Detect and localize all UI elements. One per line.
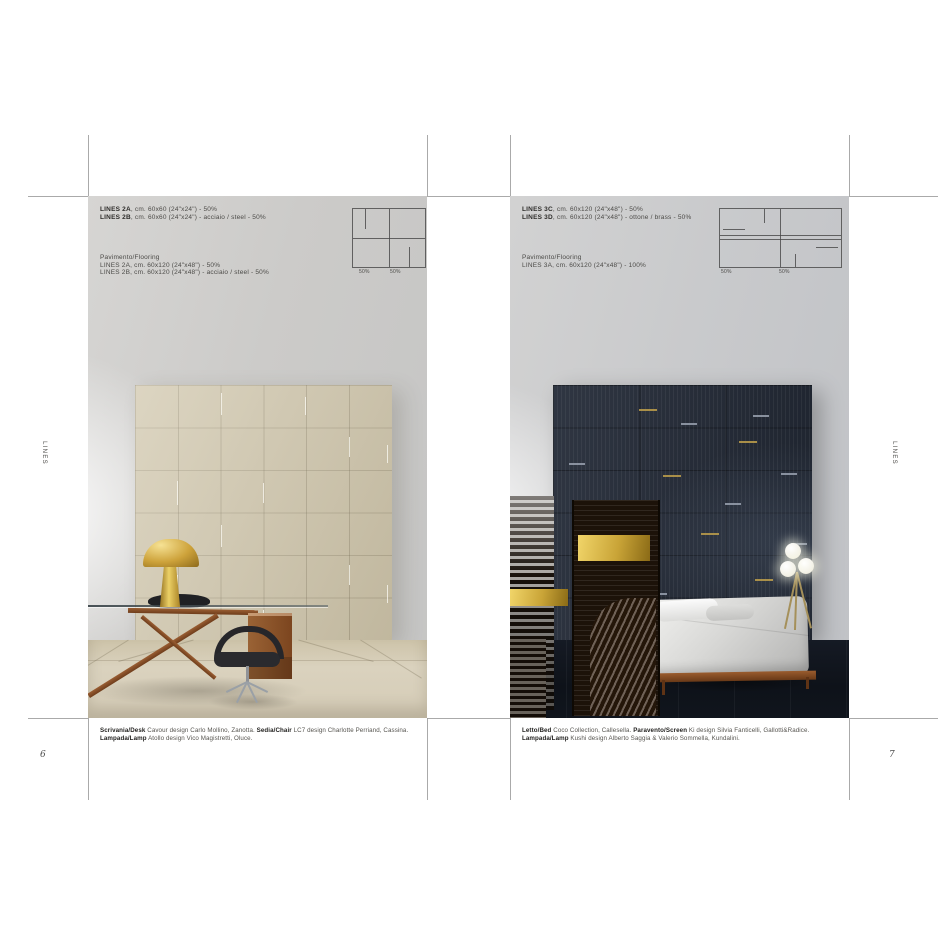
spec-block-floor-left: Pavimento/FlooringLINES 2A, cm. 60x120 (… — [100, 254, 269, 277]
spec-line: LINES 2B, cm. 60x60 (24"x24") - acciaio … — [100, 214, 266, 222]
brass-accent-dash — [639, 409, 657, 411]
catalog-spread-sheet: LINES 2A, cm. 60x60 (24"x24") - 50%LINES… — [0, 0, 940, 940]
spec-line: LINES 3D, cm. 60x120 (24"x48") - ottone … — [522, 214, 691, 222]
spec-line: LINES 3A, cm. 60x120 (24"x48") - 100% — [522, 262, 646, 270]
spec-line: Pavimento/Flooring — [100, 254, 269, 262]
page-right: LINES 3C, cm. 60x120 (24"x48") - 50%LINE… — [510, 196, 849, 718]
tile-accent-line — [177, 481, 178, 505]
caption-right: Letto/Bed Coco Collection, Callesella. P… — [522, 727, 834, 743]
tile-layout-diagram-left: 50% 50% — [352, 208, 426, 268]
bed-leg — [806, 677, 809, 689]
diagram-tick — [795, 254, 796, 267]
diagram-tick — [365, 209, 366, 229]
spec-block-wall-right: LINES 3C, cm. 60x120 (24"x48") - 50%LINE… — [522, 206, 691, 221]
steel-accent-dash — [725, 503, 741, 505]
spec-block-floor-right: Pavimento/FlooringLINES 3A, cm. 60x120 (… — [522, 254, 646, 269]
bed-pillow-front — [706, 604, 755, 621]
lc7-chair-seat — [214, 652, 280, 667]
tile-layout-diagram-right: 50% 50% — [719, 208, 842, 268]
screen-curved-slats — [590, 598, 656, 716]
collection-side-label-left: LINES — [41, 433, 47, 473]
spec-line: LINES 2A, cm. 60x120 (24"x48") - 50% — [100, 262, 269, 270]
tile-accent-line — [387, 445, 388, 463]
screen-brass-band — [510, 589, 568, 606]
spec-line: Pavimento/Flooring — [522, 254, 646, 262]
crop-mark-horizontal — [427, 196, 510, 197]
crop-mark-vertical — [510, 718, 511, 800]
crop-mark-horizontal — [28, 718, 88, 719]
crop-mark-vertical — [427, 718, 428, 800]
diagram-horizontal-rule — [720, 239, 841, 240]
spec-line: LINES 2A, cm. 60x60 (24"x24") - 50% — [100, 206, 266, 214]
screen-brass-band — [578, 535, 650, 561]
crop-mark-vertical — [849, 135, 850, 196]
collection-side-label-right: LINES — [891, 433, 897, 473]
diagram-label: 50% — [359, 269, 370, 275]
diagram-tick — [764, 209, 765, 223]
brass-accent-dash — [663, 475, 681, 477]
crop-mark-vertical — [427, 135, 428, 196]
steel-accent-dash — [569, 463, 585, 465]
diagram-center-vertical — [780, 209, 781, 267]
diagram-tick — [723, 229, 745, 230]
floor-lamp-globe — [780, 561, 796, 577]
diagram-horizontal-rule — [720, 235, 841, 236]
tile-accent-line — [349, 565, 350, 585]
tile-accent-line — [305, 397, 306, 415]
spec-line: LINES 2B, cm. 60x120 (24"x48") - acciaio… — [100, 269, 269, 277]
diagram-tick — [816, 247, 838, 248]
desk-glass-highlight — [88, 607, 328, 608]
crop-mark-horizontal — [28, 196, 88, 197]
crop-mark-vertical — [849, 718, 850, 800]
floor-lamp-globe — [785, 543, 801, 559]
floor-joint-line — [298, 640, 373, 662]
brass-accent-dash — [755, 579, 773, 581]
crop-mark-vertical — [88, 718, 89, 800]
caption-left: Scrivania/Desk Cavour design Carlo Molli… — [100, 727, 412, 743]
diagram-label: 50% — [390, 269, 401, 275]
crop-mark-vertical — [88, 135, 89, 196]
page-left: LINES 2A, cm. 60x60 (24"x24") - 50%LINES… — [88, 196, 427, 718]
brass-accent-dash — [739, 441, 757, 443]
spec-block-wall-left: LINES 2A, cm. 60x60 (24"x24") - 50%LINES… — [100, 206, 266, 221]
crop-mark-horizontal — [849, 196, 938, 197]
steel-accent-dash — [753, 415, 769, 417]
diagram-center-horizontal — [353, 238, 425, 239]
diagram-tick — [409, 247, 410, 267]
brass-accent-dash — [701, 533, 719, 535]
steel-accent-dash — [681, 423, 697, 425]
spec-line: LINES 3C, cm. 60x120 (24"x48") - 50% — [522, 206, 691, 214]
tile-accent-line — [263, 483, 264, 503]
diagram-label: 50% — [721, 269, 732, 275]
steel-accent-dash — [781, 473, 797, 475]
crop-mark-horizontal — [849, 718, 938, 719]
tile-accent-line — [221, 525, 222, 547]
page-number-left: 6 — [40, 750, 46, 760]
floor-lamp-globe — [798, 558, 814, 574]
tile-accent-line — [349, 437, 350, 457]
tile-accent-line — [221, 393, 222, 415]
crop-mark-horizontal — [427, 718, 510, 719]
tile-accent-line — [387, 585, 388, 603]
page-number-right: 7 — [889, 750, 895, 760]
bed-leg — [662, 680, 665, 695]
diagram-label: 50% — [779, 269, 790, 275]
screen-slatted-panel-bottom — [510, 636, 546, 718]
crop-mark-vertical — [510, 135, 511, 196]
